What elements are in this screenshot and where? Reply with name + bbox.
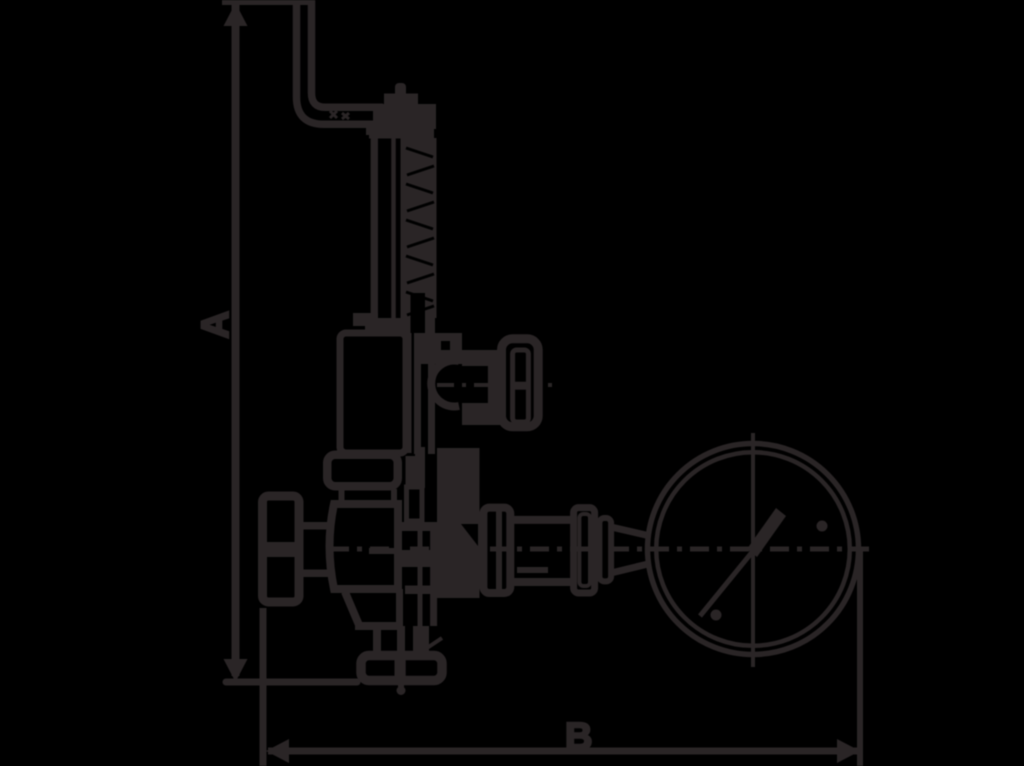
svg-text:B: B	[565, 716, 592, 758]
svg-text:A: A	[195, 311, 237, 338]
